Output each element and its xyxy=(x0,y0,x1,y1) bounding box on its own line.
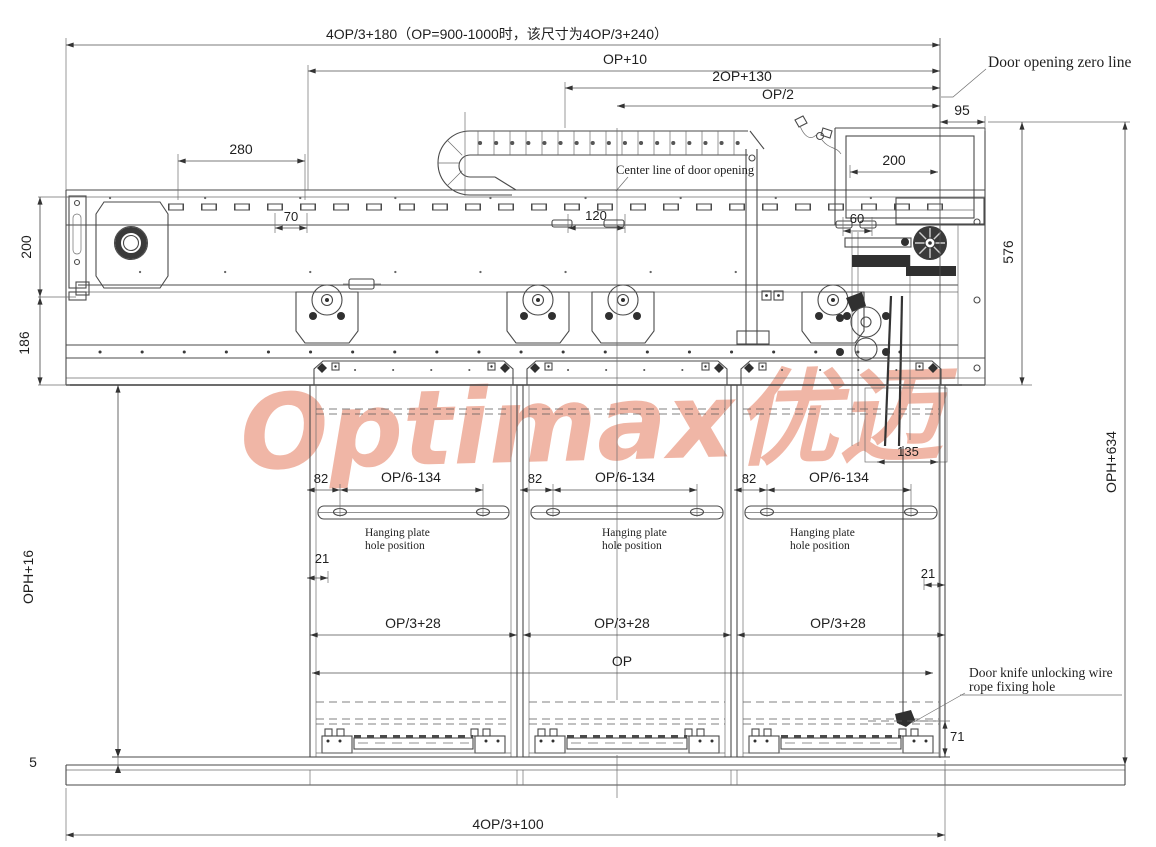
dim-op-half: OP/2 xyxy=(762,86,794,102)
cad-sheet: Optimax优迈 xyxy=(0,0,1156,847)
dim-op3-p1: OP/3+28 xyxy=(385,615,441,631)
dim-oph-634: OPH+634 xyxy=(1103,431,1119,493)
belt-tensioner xyxy=(343,279,381,289)
dim-op3-p2: OP/3+28 xyxy=(594,615,650,631)
dimensions-panels: 82 OP/6-134 Hanging plate hole position … xyxy=(307,469,945,673)
dim-bottom-formula: 4OP/3+100 xyxy=(472,816,543,832)
dim-135: 135 xyxy=(897,444,919,459)
dim-op6-p2: OP/6-134 xyxy=(595,469,655,485)
pulley xyxy=(802,285,864,343)
dim-op-plus-10: OP+10 xyxy=(603,51,647,67)
left-end-bracket xyxy=(69,196,86,300)
label-door-zero-line: Door opening zero line xyxy=(988,54,1131,71)
dim-5: 5 xyxy=(29,754,37,770)
pulley xyxy=(507,285,569,343)
wire-rope xyxy=(868,446,936,727)
dim-70: 70 xyxy=(284,209,298,224)
dim-2op-130: 2OP+130 xyxy=(712,68,772,84)
svg-text:hole position: hole position xyxy=(790,540,850,552)
dim-21-left: 21 xyxy=(315,551,329,566)
dim-top-formula: 4OP/3+180（OP=900-1000时，该尺寸为4OP/3+240） xyxy=(326,26,668,42)
belt-bracket-column xyxy=(737,149,783,345)
dim-op: OP xyxy=(612,653,632,669)
dim-60: 60 xyxy=(850,211,864,226)
svg-text:hole position: hole position xyxy=(365,540,425,552)
motor-pulley xyxy=(913,226,947,260)
label-door-knife-1: Door knife unlocking wire xyxy=(969,665,1113,680)
dim-82-p2: 82 xyxy=(528,471,542,486)
label-center-line: Center line of door opening xyxy=(616,163,755,177)
dim-186: 186 xyxy=(16,331,32,355)
dim-280: 280 xyxy=(229,141,253,157)
grommet-plate xyxy=(96,202,168,288)
cad-drawing: Optimax优迈 xyxy=(0,0,1156,847)
dimensions-bottom: 4OP/3+100 xyxy=(66,760,945,841)
hanging-label-p2: Hanging plate xyxy=(602,527,667,539)
connector-wiring xyxy=(795,116,841,154)
dim-120: 120 xyxy=(585,208,607,223)
hanging-label-p3: Hanging plate xyxy=(790,527,855,539)
dim-op6-p3: OP/6-134 xyxy=(809,469,869,485)
dim-71: 71 xyxy=(950,729,964,744)
dim-95: 95 xyxy=(954,102,970,118)
sill xyxy=(66,757,1125,785)
hanger-pulleys xyxy=(296,285,864,343)
dim-21-right: 21 xyxy=(921,566,935,581)
hanging-label-p1: Hanging plate xyxy=(365,527,430,539)
dim-82-p1: 82 xyxy=(314,471,328,486)
dim-576: 576 xyxy=(1000,240,1016,264)
svg-text:hole position: hole position xyxy=(602,540,662,552)
label-door-knife-2: rope fixing hole xyxy=(969,679,1055,694)
dim-op6-p1: OP/6-134 xyxy=(381,469,441,485)
dim-200-left: 200 xyxy=(18,235,34,259)
dim-op3-p3: OP/3+28 xyxy=(810,615,866,631)
dim-200-motor: 200 xyxy=(882,152,906,168)
dim-82-p3: 82 xyxy=(742,471,756,486)
pulley xyxy=(296,285,358,343)
dim-oph-16: OPH+16 xyxy=(20,550,36,604)
pulley xyxy=(592,285,654,343)
